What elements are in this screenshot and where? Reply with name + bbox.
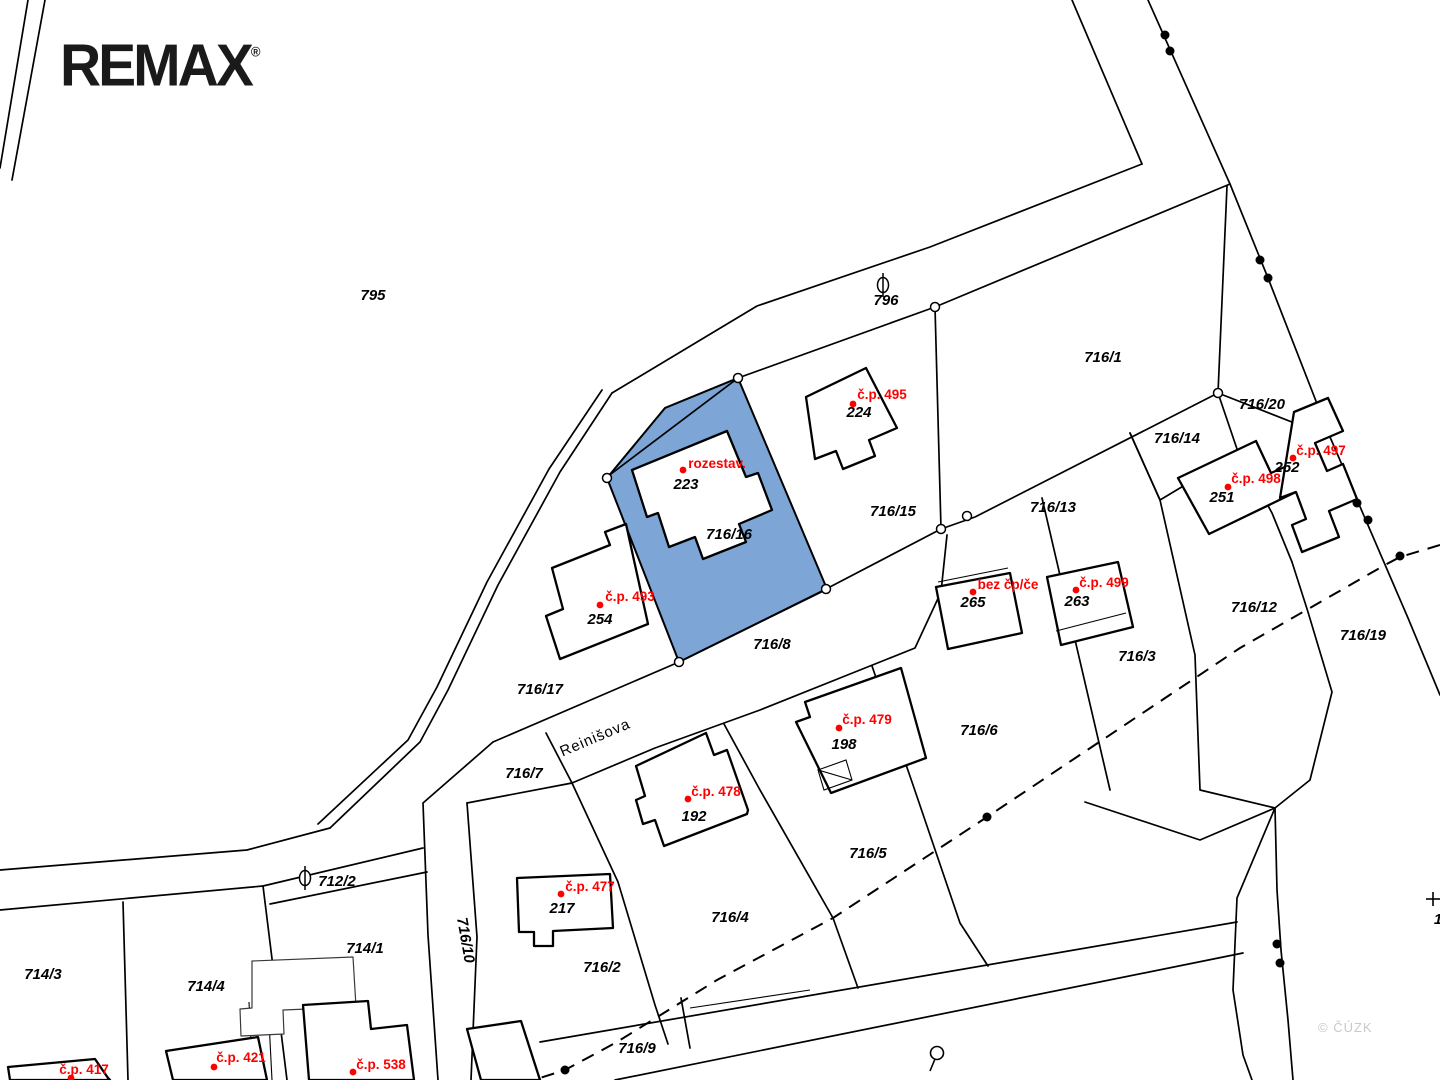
building-number-label: 198 (831, 736, 857, 753)
parcel-label: 716/9 (618, 1040, 656, 1057)
building-251 (1178, 441, 1298, 534)
building-number-label: 265 (959, 594, 986, 611)
landuse-symbol (930, 1047, 944, 1072)
street-name-label: Reinišova (557, 715, 633, 760)
house-number-dot (597, 602, 604, 609)
house-number-label: č.p. 479 (842, 712, 892, 727)
house-number-label: rozestav. (688, 456, 746, 471)
house-number-label: č.p. 493 (605, 589, 655, 604)
parcel-label: 716/1 (1084, 349, 1122, 366)
house-number-dot (1073, 587, 1080, 594)
house-number-label: bez čp/če (978, 577, 1039, 592)
parcel-label: 716/14 (1154, 430, 1201, 447)
house-number-label: č.p. 478 (691, 784, 741, 799)
house-number-label: č.p. 477 (565, 879, 615, 894)
cuzk-watermark: © ČÚZK (1318, 1020, 1373, 1035)
house-number-dot (350, 1069, 357, 1076)
building-number-label: 217 (548, 900, 575, 917)
house-number-label: č.p. 495 (857, 387, 907, 402)
remax-logo: REMAX® (60, 37, 260, 96)
parcel-label: 716/8 (753, 636, 791, 653)
registered-trademark-icon: ® (251, 44, 261, 60)
house-number-label: č.p. 417 (59, 1062, 109, 1077)
house-number-dot (970, 589, 977, 596)
street-name-labels: Reinišova (557, 715, 633, 760)
cadastral-map-screenshot: 795796716/1716/20716/14716/15716/13716/1… (0, 0, 1440, 1080)
house-number-dot (1290, 455, 1297, 462)
buildings (8, 368, 1357, 1080)
parcel-label: 716/20 (1239, 396, 1286, 413)
parcel-label: 714/1 (346, 940, 384, 957)
building-number-label: 263 (1063, 593, 1090, 610)
house-number-dot (850, 401, 857, 408)
house-number-label: č.p. 497 (1296, 443, 1346, 458)
parcel-label: 714/3 (24, 966, 62, 983)
house-number-label: č.p. 498 (1231, 471, 1281, 486)
parcel-label: 716/3 (1118, 648, 1156, 665)
house-number-label: č.p. 421 (216, 1050, 266, 1065)
parcel-label: 716/15 (870, 503, 917, 520)
house-number-dot (836, 725, 843, 732)
house-number-dot (211, 1064, 218, 1071)
building-number-label: 254 (586, 611, 613, 628)
house-number-label: č.p. 499 (1079, 575, 1129, 590)
parcel-label: 716/19 (1340, 627, 1387, 644)
building-number-label: 1 (1434, 911, 1440, 928)
cadastral-map-canvas[interactable]: 795796716/1716/20716/14716/15716/13716/1… (0, 0, 1440, 1080)
parcel-label: 716/4 (711, 909, 749, 926)
parcel-label: 716/13 (1030, 499, 1077, 516)
building-partial-bottom (467, 1021, 540, 1080)
building-198 (796, 668, 926, 793)
parcel-label: 716/12 (1231, 599, 1278, 616)
house-number-label: č.p. 538 (356, 1057, 406, 1072)
parcel-label: 716/7 (505, 765, 543, 782)
parcel-label: 716/5 (849, 845, 887, 862)
parcel-label: 716/6 (960, 722, 998, 739)
parcel-label: 796 (873, 292, 899, 309)
building-number-label: 223 (672, 476, 699, 493)
cross-mark (1426, 892, 1440, 906)
house-number-dot (685, 796, 692, 803)
parcel-label: 714/4 (187, 978, 225, 995)
building-number-label: 224 (845, 404, 872, 421)
parcel-label: 712/2 (318, 873, 356, 890)
parcel-label: 716/10 (453, 916, 478, 965)
parcel-label: 716/17 (517, 681, 564, 698)
building-number-label: 251 (1208, 489, 1234, 506)
parcel-label: 795 (360, 287, 386, 304)
house-number-dot (1225, 484, 1232, 491)
house-number-dot (680, 467, 687, 474)
building-number-label: 139 (200, 1076, 226, 1080)
building-number-label: 192 (681, 808, 707, 825)
house-number-dot (558, 891, 565, 898)
parcel-label: 716/16 (706, 526, 753, 543)
parcel-label: 716/2 (583, 959, 621, 976)
